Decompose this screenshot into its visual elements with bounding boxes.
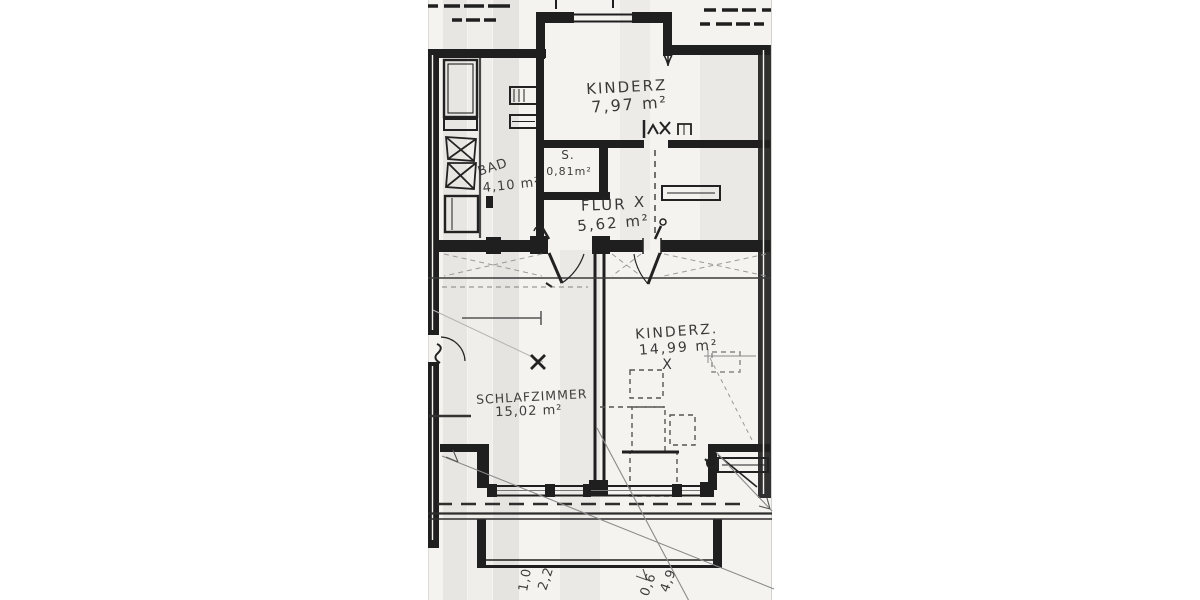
closet-area: 0,81m²	[546, 165, 592, 178]
flur-x-mark: X	[634, 193, 646, 211]
scanned-floor-plan: KINDERZ 7,97 m² S. 0,81m² BAD 4,10 m² FL…	[0, 0, 1200, 600]
wall-block	[486, 196, 493, 208]
closet-label: S.	[561, 148, 574, 162]
schlafzimmer-area: 15,02 m²	[495, 403, 563, 420]
floor-plan-svg: KINDERZ 7,97 m² S. 0,81m² BAD 4,10 m² FL…	[0, 0, 1200, 600]
flur-label: FLUR	[581, 195, 627, 215]
kinderz-lower-x-mark: X	[662, 357, 674, 373]
